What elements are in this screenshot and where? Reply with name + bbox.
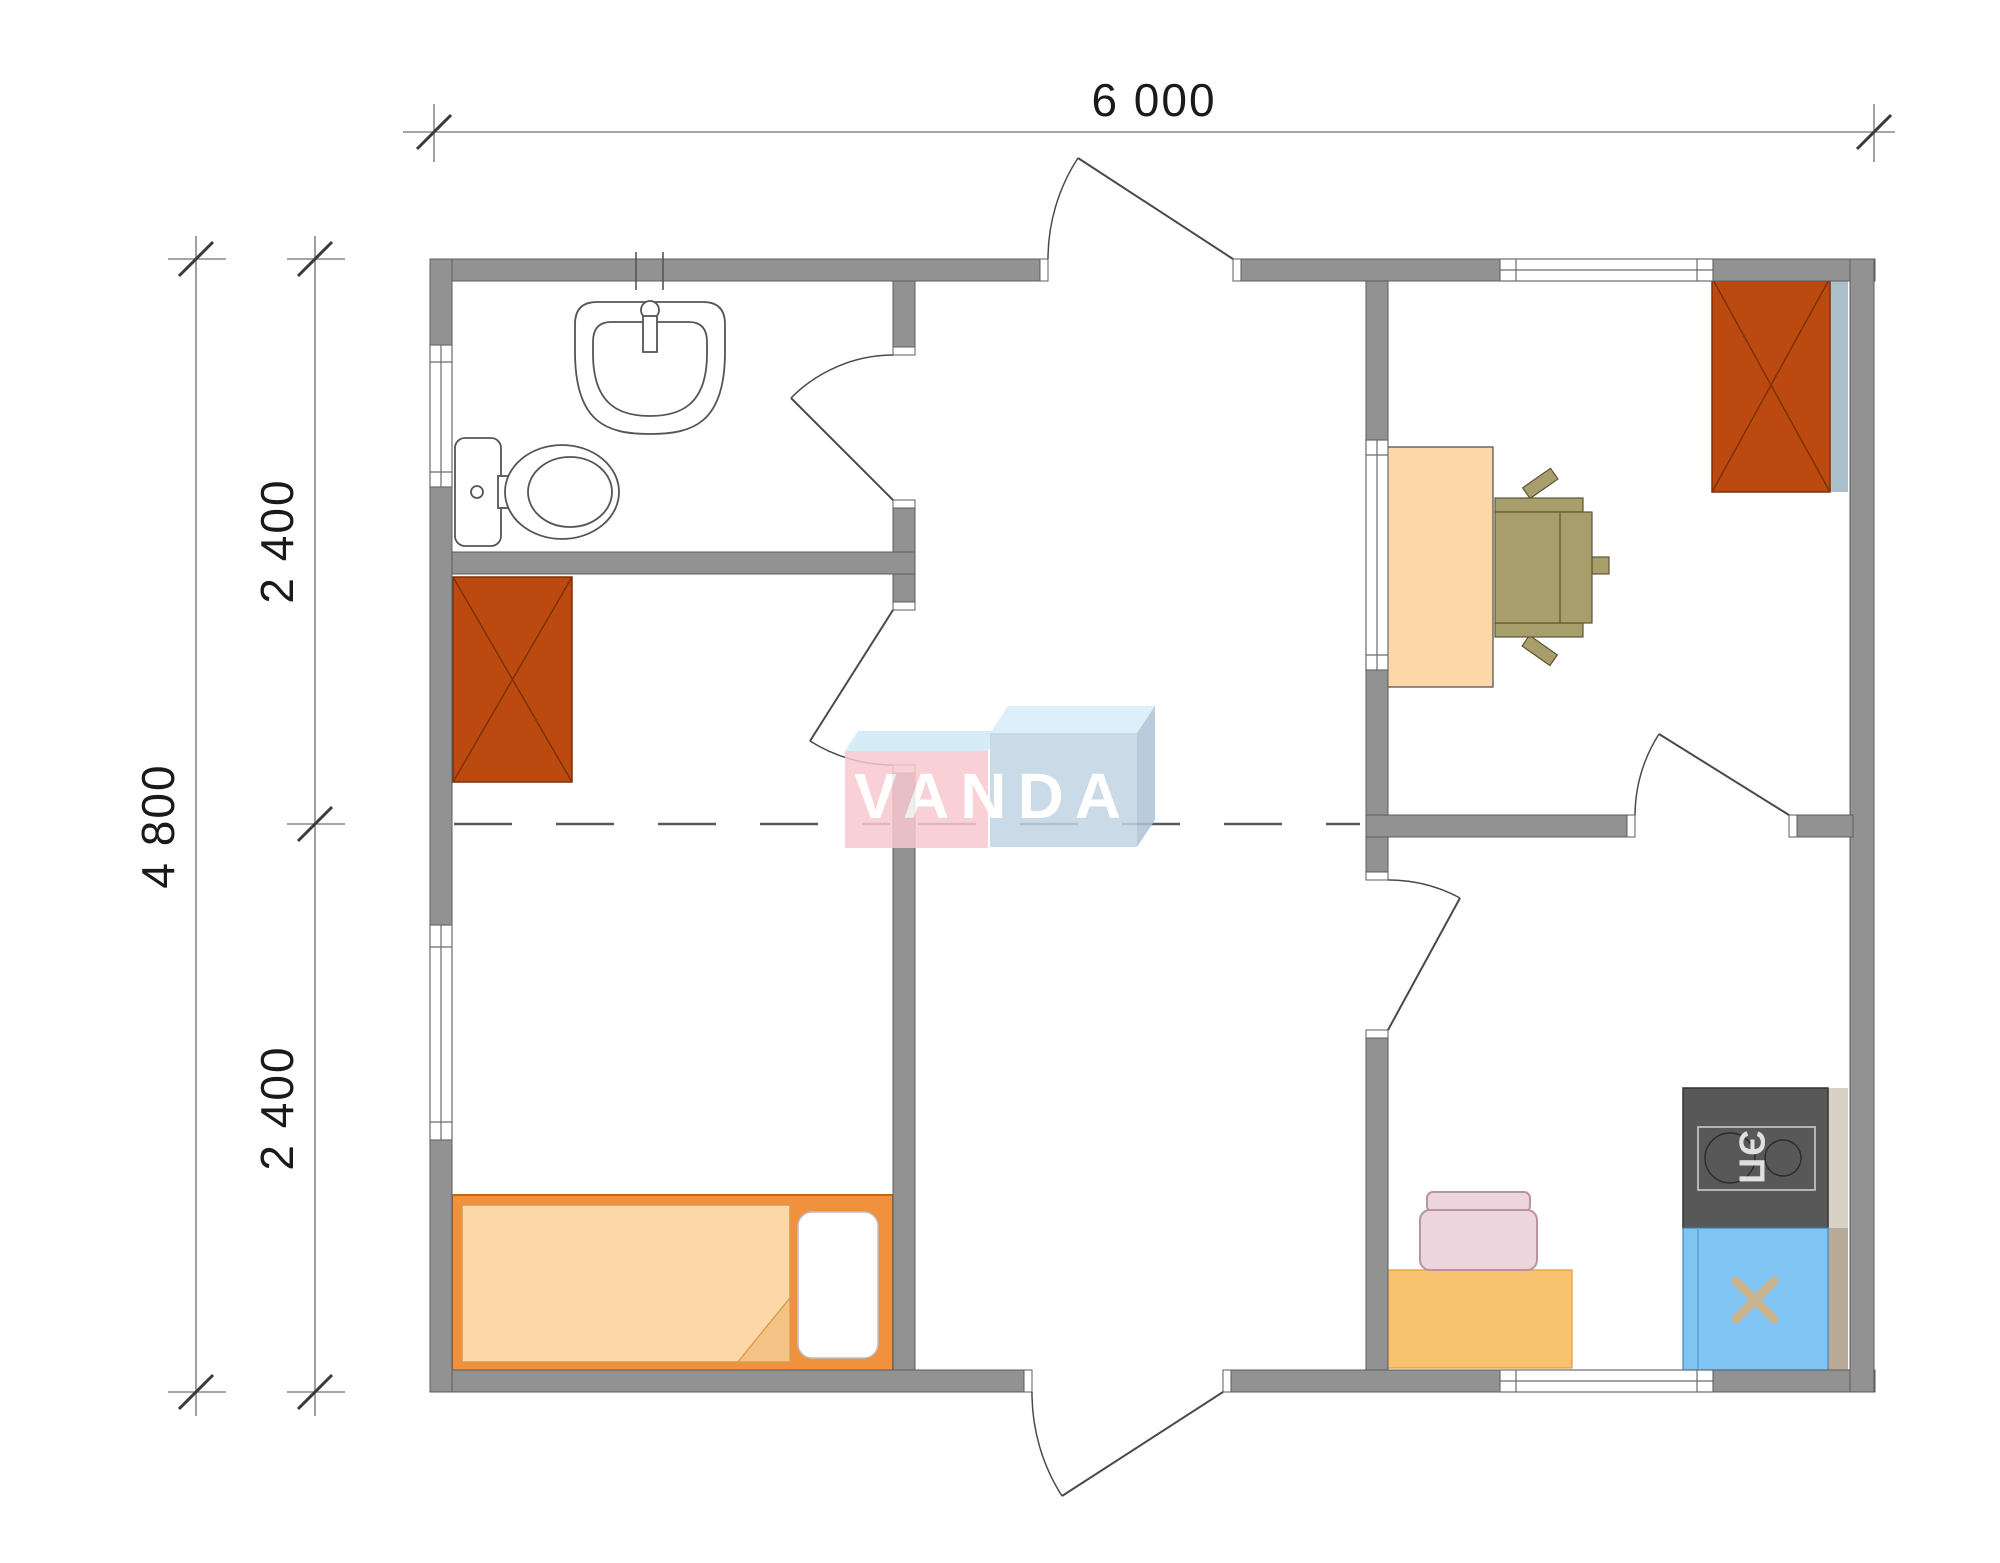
exterior-wall-bottom xyxy=(430,1370,1032,1392)
window-bedroom-left xyxy=(430,925,452,1140)
door-entrance-top xyxy=(1048,158,1233,259)
dimension-label-upper-height: 2 400 xyxy=(251,478,303,603)
door-leaf xyxy=(1659,734,1789,815)
wardrobe-icon xyxy=(453,577,572,782)
door-leaf xyxy=(1062,1392,1223,1496)
door-kitchen xyxy=(1388,880,1460,1030)
door-swing-arc xyxy=(1635,734,1659,815)
flush-button xyxy=(471,486,483,498)
door-bathroom xyxy=(791,355,893,500)
door-swing-arc xyxy=(1048,158,1078,259)
floor-plan-svg: 6 000 4 800 2 400 2 400 xyxy=(0,0,2000,1563)
interior-wall-bathroom-south xyxy=(452,552,915,574)
exterior-wall-right xyxy=(1850,259,1874,1392)
logo-blue-top-face xyxy=(990,706,1155,733)
window-bathroom-left xyxy=(430,345,452,487)
logo-pink-top-face xyxy=(845,731,1001,751)
exterior-wall-left xyxy=(430,259,452,345)
wardrobe-shadow xyxy=(1830,278,1848,492)
door-swing-arc xyxy=(1388,880,1460,898)
vanda-watermark: VANDA xyxy=(845,706,1155,848)
faucet xyxy=(643,316,657,352)
interior-wall-office-west xyxy=(1366,281,1388,440)
stove-icon: ЭП xyxy=(1683,1088,1848,1228)
pillow xyxy=(798,1212,878,1358)
dimension-left-halves: 2 400 2 400 xyxy=(251,236,345,1416)
bed-icon xyxy=(452,1195,893,1372)
door-leaf xyxy=(791,398,893,500)
logo-text: VANDA xyxy=(854,760,1132,832)
door-leaf xyxy=(810,610,893,741)
stove-label: ЭП xyxy=(1731,1130,1772,1186)
dimension-top-width: 6 000 xyxy=(403,74,1895,162)
door-leaf xyxy=(1078,158,1233,259)
door-entrance-bottom xyxy=(1032,1392,1223,1496)
window-office-interior xyxy=(1366,440,1388,670)
door-office xyxy=(1635,734,1789,815)
interior-wall-bathroom-east xyxy=(893,281,915,355)
door-leaf xyxy=(1388,898,1460,1030)
mattress xyxy=(462,1205,790,1362)
dimension-label-lower-height: 2 400 xyxy=(251,1045,303,1170)
dimension-label-width: 6 000 xyxy=(1091,74,1216,126)
chair-icon xyxy=(1420,1192,1537,1270)
floor-plan-page: 6 000 4 800 2 400 2 400 xyxy=(0,0,2000,1563)
dimension-label-total-height: 4 800 xyxy=(132,763,184,888)
dimension-left-total: 4 800 xyxy=(132,236,226,1416)
door-swing-arc xyxy=(1032,1392,1062,1496)
dining-table-icon xyxy=(1385,1270,1572,1368)
window-office-top xyxy=(1500,259,1713,281)
wardrobe-icon xyxy=(1712,278,1848,492)
door-swing-arc xyxy=(791,355,893,398)
interior-wall-office-south xyxy=(1366,815,1635,837)
exterior-wall-top xyxy=(430,259,1048,281)
interior-wall-bedroom-east xyxy=(893,765,915,1370)
toilet-icon xyxy=(455,438,619,546)
interior-wall-kitchen-west xyxy=(1366,1030,1388,1370)
window-kitchen-bottom xyxy=(1500,1370,1713,1392)
office-chair-icon xyxy=(1495,468,1609,665)
kitchen-sink-icon xyxy=(1683,1228,1848,1370)
desk-icon xyxy=(1383,447,1493,687)
